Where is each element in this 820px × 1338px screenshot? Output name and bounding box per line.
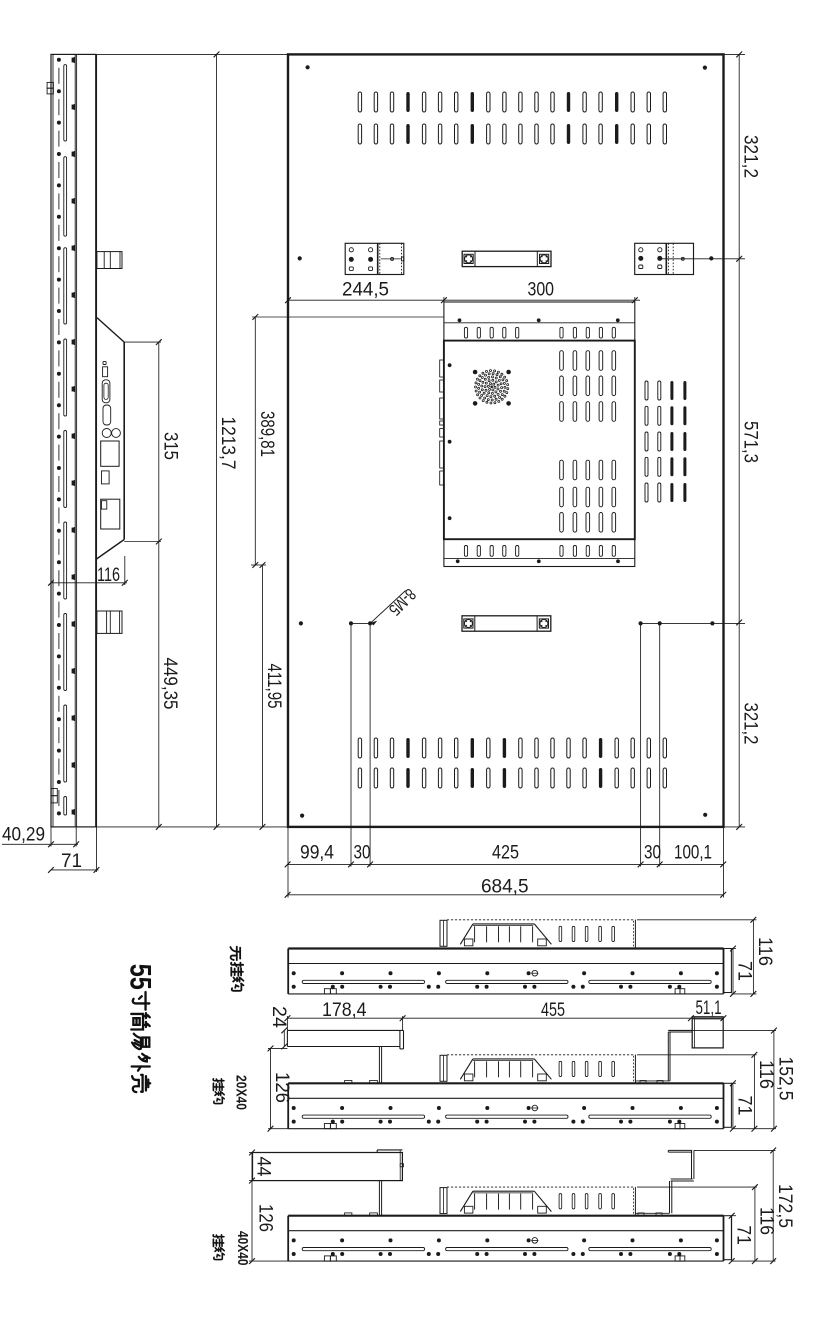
svg-text:321,2: 321,2 (740, 135, 761, 178)
svg-text:116: 116 (97, 565, 120, 586)
svg-text:71: 71 (61, 851, 82, 872)
svg-text:100,1: 100,1 (674, 843, 712, 864)
svg-text:244,5: 244,5 (342, 280, 389, 301)
svg-text:51,1: 51,1 (696, 998, 722, 1019)
svg-text:1213,7: 1213,7 (217, 417, 238, 470)
svg-text:71: 71 (734, 1096, 755, 1116)
svg-text:116: 116 (754, 937, 775, 966)
svg-text:684,5: 684,5 (481, 877, 529, 898)
svg-text:71: 71 (732, 1225, 753, 1245)
svg-text:116: 116 (755, 1060, 776, 1089)
svg-text:24: 24 (268, 1006, 289, 1028)
svg-text:315: 315 (159, 432, 180, 460)
svg-text:30: 30 (644, 843, 661, 864)
svg-text:411,95: 411,95 (263, 664, 284, 709)
svg-text:44: 44 (253, 1157, 274, 1177)
svg-text:40,29: 40,29 (2, 825, 45, 846)
svg-text:300: 300 (528, 280, 555, 301)
svg-text:99,4: 99,4 (300, 843, 334, 864)
svg-text:425: 425 (492, 843, 519, 864)
svg-text:449,35: 449,35 (159, 658, 180, 710)
svg-text:571,3: 571,3 (740, 421, 761, 463)
svg-text:30: 30 (354, 843, 371, 864)
svg-text:71: 71 (734, 961, 755, 981)
svg-text:172,5: 172,5 (774, 1184, 795, 1228)
svg-text:321,2: 321,2 (740, 703, 761, 745)
svg-text:455: 455 (541, 1000, 565, 1021)
svg-text:389,81: 389,81 (256, 411, 277, 457)
svg-text:55: 55 (124, 964, 157, 990)
svg-text:152,5: 152,5 (775, 1057, 796, 1101)
svg-text:20X40: 20X40 (232, 1075, 249, 1110)
svg-text:126: 126 (271, 1072, 292, 1103)
svg-text:40X40: 40X40 (234, 1231, 251, 1266)
svg-text:126: 126 (254, 1204, 275, 1232)
svg-text:178,4: 178,4 (322, 1000, 367, 1021)
